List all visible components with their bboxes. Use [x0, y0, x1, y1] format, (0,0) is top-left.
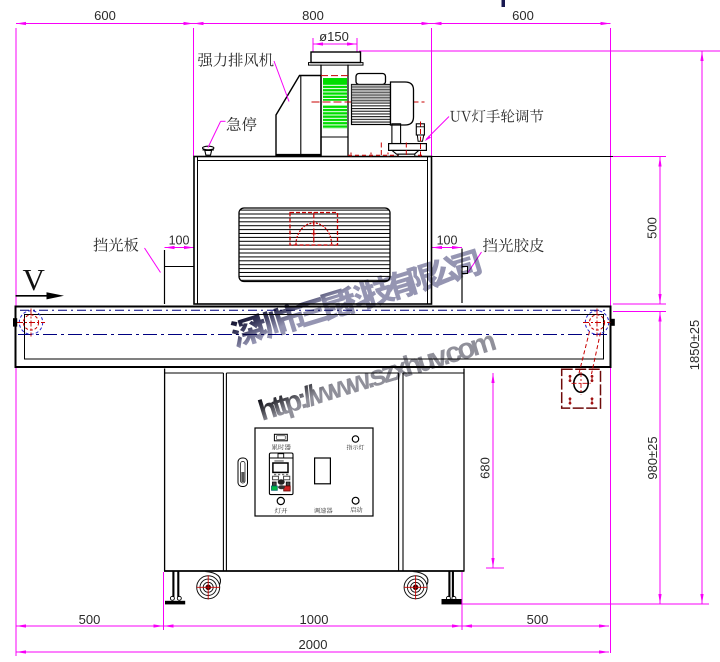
svg-text:500: 500 [527, 612, 549, 627]
svg-text:600: 600 [512, 8, 534, 23]
svg-text:V: V [23, 262, 46, 297]
svg-text:1000: 1000 [300, 612, 329, 627]
svg-text:2000: 2000 [299, 637, 328, 652]
svg-text:500: 500 [645, 217, 660, 239]
svg-text:680: 680 [478, 457, 493, 479]
svg-text:100: 100 [437, 234, 458, 248]
svg-text:600: 600 [94, 8, 116, 23]
svg-text:ø150: ø150 [319, 29, 349, 44]
svg-text:800: 800 [302, 8, 324, 23]
svg-text:500: 500 [79, 612, 101, 627]
svg-text:1850±25: 1850±25 [687, 320, 702, 371]
svg-text:980±25: 980±25 [645, 436, 660, 479]
svg-text:100: 100 [169, 234, 190, 248]
